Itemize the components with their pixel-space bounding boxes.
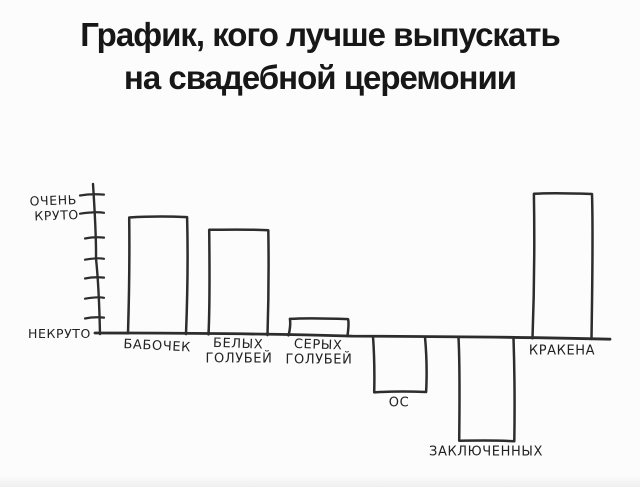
bar [128, 217, 188, 335]
bar [373, 336, 427, 392]
bar [459, 337, 515, 441]
bar [289, 318, 349, 336]
y-axis-tick [85, 297, 104, 298]
y-axis-tick [85, 258, 104, 259]
bar-label: СЕРЫХ [294, 337, 343, 354]
bar [533, 193, 593, 339]
bar-label: ЗАКЛЮЧЕННЫХ [429, 445, 543, 460]
bar-label: БАБОЧЕК [123, 337, 191, 356]
y-axis-tick [85, 317, 104, 318]
y-axis-tick [80, 212, 104, 213]
bar-label: КРАКЕНА [529, 344, 595, 359]
y-axis-tick [85, 237, 104, 238]
bar-label: ГОЛУБЕЙ [286, 352, 353, 368]
y-label-very-cool-line1: ОЧЕНЬ [29, 192, 77, 209]
bar-label: ГОЛУБЕЙ [206, 351, 273, 367]
y-axis-tick [80, 194, 104, 195]
bar-chart-canvas: БАБОЧЕКБЕЛЫХГОЛУБЕЙСЕРЫХГОЛУБЕЙОСЗАКЛЮЧЕ… [0, 0, 640, 487]
y-label-not-cool: НЕКРУТО [28, 326, 91, 341]
bar-label: ОС [389, 396, 410, 411]
bar [209, 230, 269, 336]
wedding-chart-meme: График, кого лучше выпускать на свадебно… [0, 0, 640, 487]
bar-label: БЕЛЫХ [213, 336, 264, 353]
y-axis-tick [85, 277, 104, 278]
y-label-very-cool-line2: КРУТО [34, 207, 79, 224]
